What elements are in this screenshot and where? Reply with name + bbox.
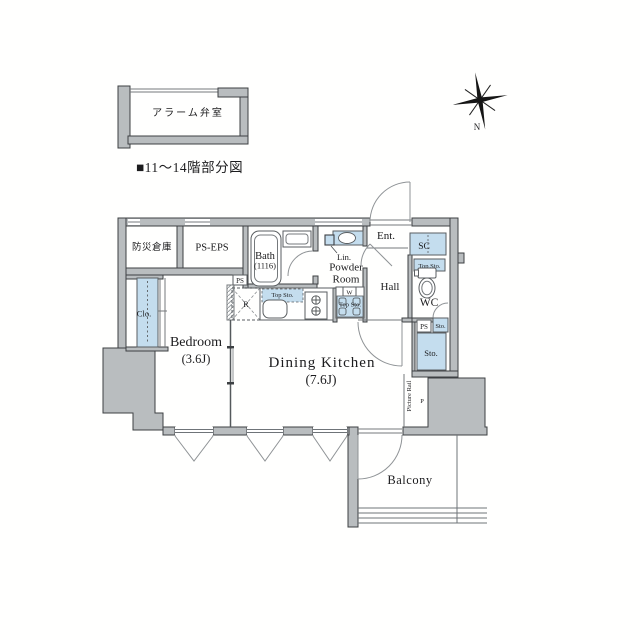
disaster-storage-label: 防災倉庫 [132, 241, 172, 253]
bath-door-arc [288, 251, 313, 276]
wall-sto-left [412, 322, 415, 371]
window-1 [175, 427, 213, 461]
powder-room-label-1: Powder [329, 262, 363, 274]
hall-label: Hall [381, 281, 400, 293]
wall-storage-divider [177, 226, 183, 268]
wall-pier-3 [283, 427, 313, 435]
right-column: SC Top Sto. WC PS Sto. Sto. [410, 233, 448, 370]
washer-space: W Top Sto. [336, 287, 364, 318]
window-3 [313, 427, 347, 461]
balcony: Balcony [358, 435, 487, 523]
dining-kitchen-size-label: (7.6J) [305, 372, 336, 387]
partition-door-jamb-2 [227, 382, 234, 385]
alarm-valve-room-inset: アラーム弁室 [118, 86, 248, 148]
ps-top-label: PS [236, 277, 244, 285]
ps-right-label: PS [420, 323, 428, 331]
inset-room-label: アラーム弁室 [152, 106, 224, 119]
washer-top-storage-label: Top Sto. [339, 302, 361, 309]
kitchen-top-storage-label: Top Sto. [272, 292, 294, 299]
linen-cabinet [325, 235, 334, 245]
storage-small-label: Sto. [435, 323, 446, 330]
balcony-label: Balcony [387, 473, 432, 487]
inset-wall-bottom [128, 136, 248, 144]
p-label: P [420, 398, 424, 405]
closet: Clo. [137, 278, 167, 347]
wall-mass-bottom-left [103, 348, 163, 430]
windows [175, 427, 347, 461]
bath-size-label: (1116) [254, 261, 276, 271]
toilet-icon [415, 268, 437, 298]
picture-rail-label: Picture Rail [406, 380, 413, 411]
wall-right-bump [458, 253, 464, 263]
wall-pier-4 [347, 427, 349, 435]
ps-top-box: PS [233, 275, 247, 285]
powder-room-label-2: Room [333, 274, 360, 286]
wall-closet-bottom [126, 347, 168, 351]
floorplan-canvas: アラーム弁室 ■11〜14階部分図 N [0, 0, 640, 640]
bath-counter [283, 231, 311, 247]
page-title: ■11〜14階部分図 [136, 160, 243, 175]
linen-label: Lin. [337, 252, 351, 262]
wall-mass-bottom-right [403, 378, 487, 435]
wc-label: WC [420, 297, 439, 309]
wall-bath-right-lower [313, 276, 318, 284]
window-swing-mark [175, 436, 213, 461]
shoe-closet-label: SC [418, 242, 430, 252]
partition-door-jamb-1 [227, 346, 234, 349]
bathroom: Bath (1116) [251, 231, 313, 286]
dining-kitchen-label: Dining Kitchen [269, 355, 376, 371]
wall-pier-1 [163, 427, 175, 435]
entrance-label: Ent. [377, 230, 395, 242]
bedroom-label: Bedroom [170, 335, 222, 350]
wall-sto-bottom [412, 371, 458, 377]
inset-wall-topright [218, 88, 248, 97]
closet-label: Clo. [137, 309, 151, 319]
kitchen: R Top Sto. [232, 288, 333, 320]
wall-balcony-left [348, 427, 358, 527]
wall-left [118, 218, 126, 350]
wall-pier-2 [213, 427, 247, 435]
window-2 [247, 427, 283, 461]
kitchen-sink-icon [263, 300, 287, 318]
bedroom-size-label: (3.6J) [182, 352, 211, 366]
wall-partition-hatched [227, 285, 234, 320]
wall-hall-wc [408, 255, 412, 318]
storage-big-label: Sto. [424, 348, 437, 358]
refrigerator-label: R [243, 299, 249, 309]
wall-powder-right-upper [363, 226, 367, 246]
entrance-door-arc [370, 182, 410, 222]
ps-eps-label: PS-EPS [195, 243, 228, 254]
washer-label: W [346, 290, 353, 297]
powder-door-leaf [370, 244, 392, 266]
compass-icon: N [448, 68, 513, 135]
window-swing-mark [247, 436, 283, 461]
bedroom: Bedroom (3.6J) [170, 320, 234, 427]
wall-right [450, 218, 458, 378]
vanity-basin-icon [339, 233, 356, 244]
compass-north-label: N [474, 122, 481, 132]
wall-hall-bottom-stub [402, 318, 412, 322]
window-swing-mark [313, 436, 347, 461]
wall-bath-right-upper [313, 226, 318, 251]
wall-under-storage [126, 268, 248, 275]
